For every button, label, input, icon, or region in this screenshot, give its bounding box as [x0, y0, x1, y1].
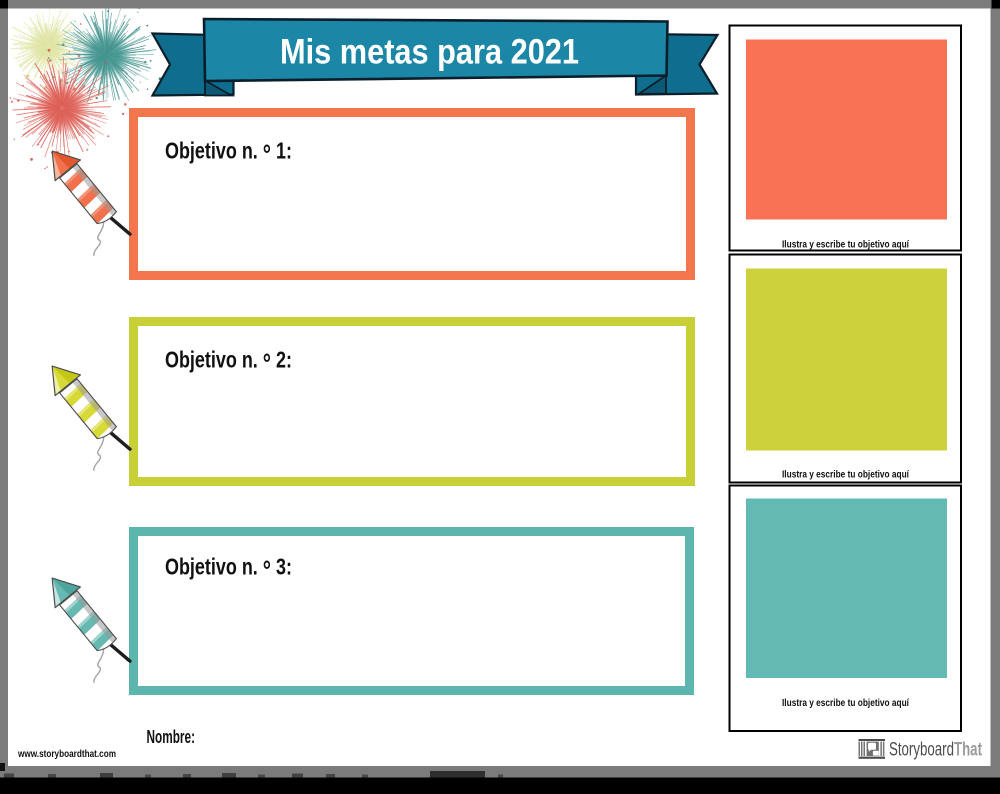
svg-text:StoryboardThat: StoryboardThat: [889, 740, 982, 761]
svg-text:Nombre:: Nombre:: [147, 727, 196, 747]
svg-text:Ilustra y escribe tu objetivo: Ilustra y escribe tu objetivo aquí: [782, 697, 910, 709]
svg-text:Ilustra y escribe tu objetivo: Ilustra y escribe tu objetivo aquí: [782, 469, 910, 481]
svg-text:www.storyboardthat.com: www.storyboardthat.com: [17, 748, 116, 760]
svg-text:Ilustra y escribe tu objetivo: Ilustra y escribe tu objetivo aquí: [782, 239, 910, 251]
svg-text:Mis metas para 2021: Mis metas para 2021: [280, 32, 579, 72]
